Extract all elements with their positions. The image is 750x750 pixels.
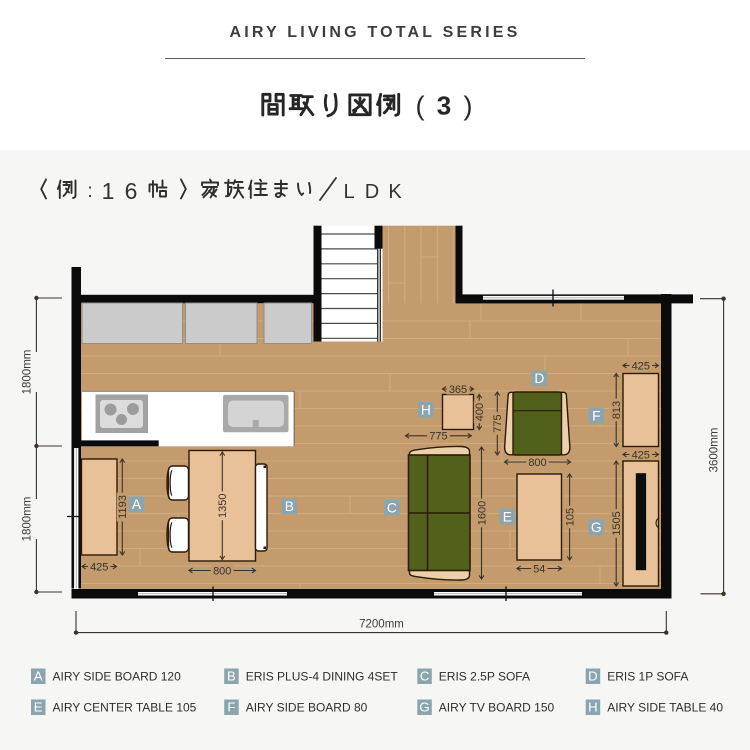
svg-text:105: 105 [564, 508, 576, 526]
svg-text:F: F [227, 700, 235, 715]
svg-text:G: G [419, 700, 429, 715]
svg-text:B: B [285, 499, 294, 514]
svg-text:ERIS PLUS-4 DINING 4SET: ERIS PLUS-4 DINING 4SET [246, 670, 399, 684]
svg-text:54: 54 [533, 563, 545, 575]
svg-text:1800mm: 1800mm [21, 497, 33, 542]
svg-text:A: A [34, 669, 43, 684]
svg-text:365: 365 [449, 384, 467, 396]
svg-text:425: 425 [632, 360, 650, 372]
svg-text:K: K [388, 181, 402, 203]
svg-text:L: L [343, 181, 354, 203]
svg-text:(: ( [416, 91, 425, 121]
svg-text:A: A [132, 497, 142, 512]
svg-text:ERIS 2.5P SOFA: ERIS 2.5P SOFA [439, 670, 530, 684]
svg-text:1600: 1600 [476, 501, 488, 525]
svg-text:ERIS 1P SOFA: ERIS 1P SOFA [607, 670, 688, 684]
svg-text:425: 425 [632, 449, 650, 461]
svg-text:7200mm: 7200mm [359, 619, 404, 631]
svg-text:1193: 1193 [117, 495, 129, 519]
svg-text:AIRY SIDE BOARD 80: AIRY SIDE BOARD 80 [246, 701, 368, 715]
svg-text:3: 3 [437, 91, 451, 121]
svg-text:G: G [591, 520, 602, 535]
svg-text:813: 813 [611, 401, 623, 419]
svg-text:1350: 1350 [217, 494, 229, 518]
svg-text:E: E [34, 700, 43, 715]
svg-text:1505: 1505 [611, 511, 623, 535]
svg-text:6: 6 [125, 178, 138, 204]
svg-text:E: E [503, 509, 512, 524]
svg-text:AIRY SIDE BOARD 120: AIRY SIDE BOARD 120 [53, 670, 182, 684]
svg-text:425: 425 [90, 561, 108, 573]
svg-text:1800mm: 1800mm [21, 350, 33, 395]
svg-text:400: 400 [474, 403, 486, 421]
svg-text:): ) [464, 91, 473, 121]
svg-text:1: 1 [102, 178, 115, 204]
svg-text:B: B [227, 669, 236, 684]
svg-text:AIRY LIVING TOTAL SERIES: AIRY LIVING TOTAL SERIES [229, 24, 520, 41]
svg-text:F: F [592, 408, 600, 423]
svg-text:D: D [588, 669, 598, 684]
svg-text:AIRY TV BOARD 150: AIRY TV BOARD 150 [439, 701, 555, 715]
svg-text:D: D [365, 181, 379, 203]
svg-text:H: H [588, 700, 598, 715]
svg-text:AIRY SIDE TABLE 40: AIRY SIDE TABLE 40 [607, 701, 723, 715]
svg-text:800: 800 [213, 565, 231, 577]
svg-text:D: D [534, 371, 544, 386]
svg-text:AIRY CENTER TABLE 105: AIRY CENTER TABLE 105 [53, 701, 197, 715]
svg-text:775: 775 [429, 431, 447, 443]
svg-text:H: H [421, 403, 431, 418]
svg-text:3600mm: 3600mm [708, 428, 720, 473]
svg-text:800: 800 [528, 457, 546, 469]
svg-text::: : [87, 181, 92, 202]
svg-text:775: 775 [492, 414, 504, 432]
svg-text:C: C [420, 669, 430, 684]
svg-text:C: C [387, 501, 397, 516]
